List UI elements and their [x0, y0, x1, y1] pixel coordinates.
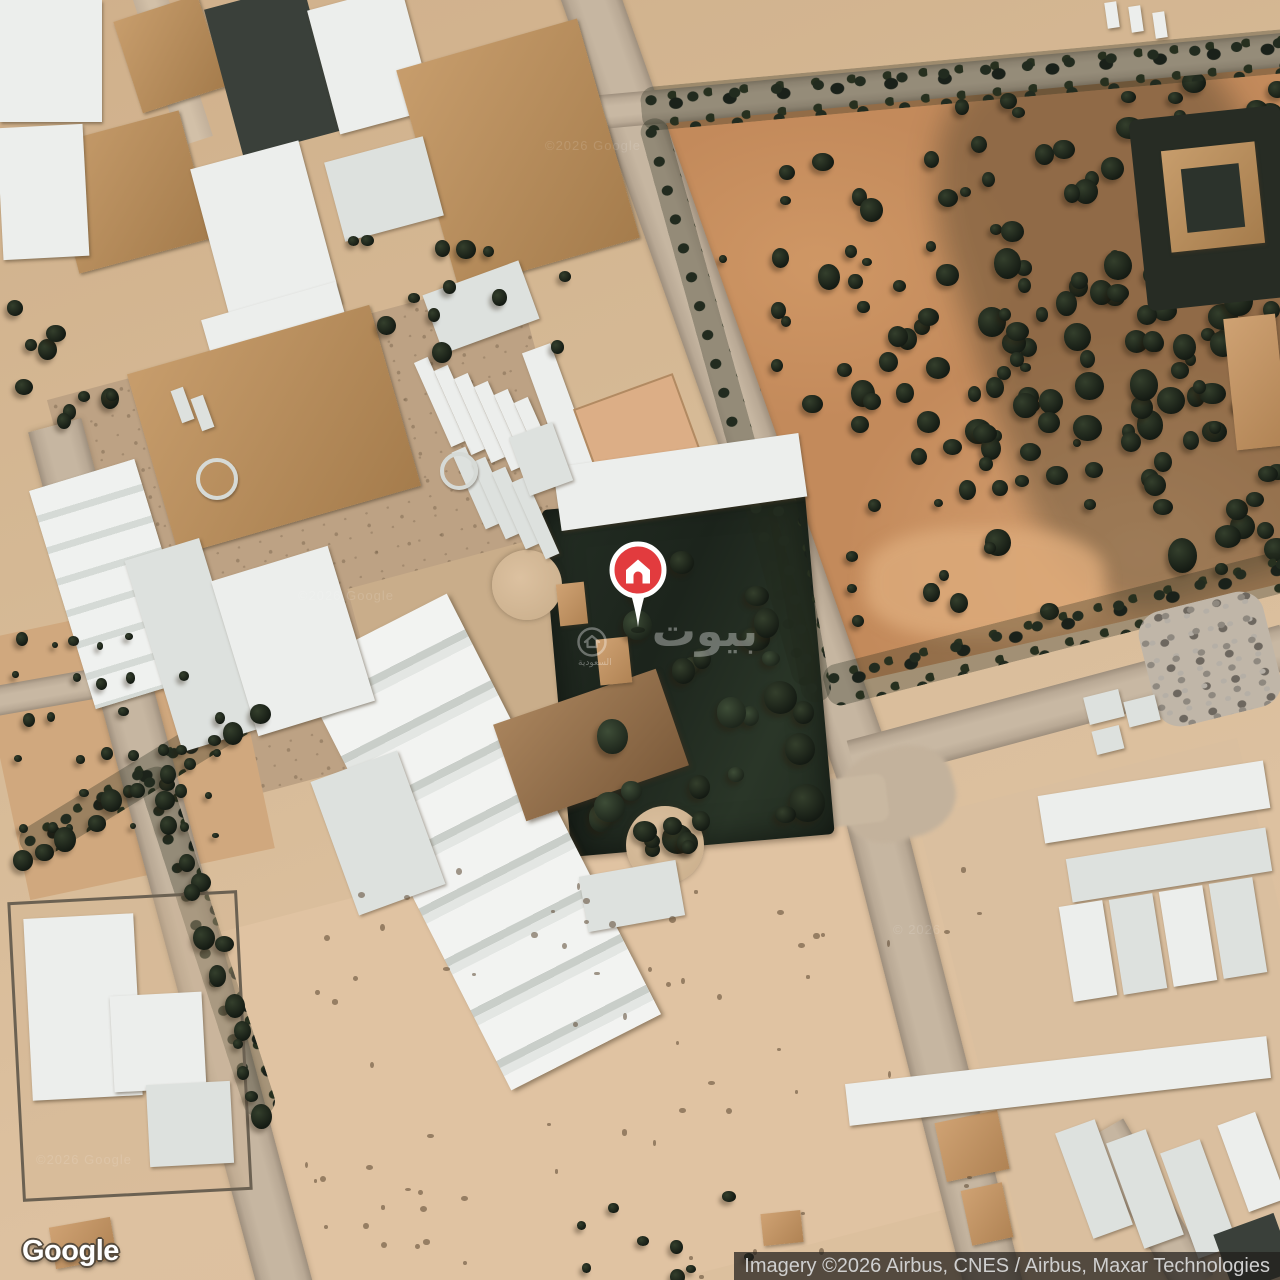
tree — [1268, 81, 1280, 99]
tree — [917, 411, 940, 433]
tree — [926, 357, 950, 378]
tree — [1013, 393, 1038, 418]
shed — [934, 1110, 1009, 1182]
tree — [175, 784, 186, 798]
shrub — [363, 1223, 368, 1229]
tree — [251, 1104, 272, 1129]
tree — [764, 681, 797, 714]
imagery-watermark: ©2026 Google — [545, 138, 641, 153]
tree — [435, 240, 450, 256]
tree — [1246, 492, 1264, 507]
tree — [1015, 475, 1029, 487]
imagery-attribution: Imagery ©2026 Airbus, CNES / Airbus, Max… — [734, 1252, 1280, 1280]
tree — [1104, 251, 1131, 280]
tree — [234, 1021, 251, 1041]
imagery-watermark: ©2026 Google — [36, 1152, 132, 1167]
tree — [936, 264, 959, 287]
tree — [893, 280, 906, 292]
shrub — [320, 1176, 326, 1182]
tree — [793, 701, 814, 724]
tree — [863, 393, 881, 410]
tree — [233, 1039, 244, 1049]
tree — [483, 246, 494, 257]
tree — [594, 792, 625, 822]
tree — [1084, 499, 1095, 509]
shrub — [332, 999, 338, 1004]
tree — [847, 584, 857, 593]
tree — [837, 363, 852, 377]
tree — [78, 391, 90, 402]
tree — [205, 792, 212, 799]
map-canvas[interactable]: ©2026 Google ©2026 Google ©2026 Google ©… — [0, 0, 1280, 1280]
tree — [950, 593, 968, 613]
tree — [408, 293, 420, 304]
shrub — [324, 935, 330, 941]
tree — [432, 342, 452, 363]
tree — [582, 1263, 590, 1272]
tree — [779, 165, 795, 180]
tree — [1018, 278, 1031, 293]
tree — [1193, 380, 1206, 394]
tree — [176, 745, 187, 756]
building — [1092, 725, 1125, 755]
shrub — [681, 978, 684, 984]
shrub — [622, 1129, 628, 1136]
tree — [215, 936, 235, 952]
tree — [717, 697, 746, 727]
tree — [101, 747, 112, 760]
tree — [492, 289, 507, 307]
tree — [577, 1221, 586, 1230]
tree — [1080, 350, 1095, 368]
tree — [1168, 538, 1198, 573]
tree — [868, 499, 881, 512]
shrub — [967, 1176, 972, 1179]
tree — [918, 308, 939, 326]
tree — [852, 615, 864, 627]
tree — [1168, 92, 1183, 104]
tree — [179, 854, 195, 872]
building — [0, 0, 102, 122]
building — [110, 992, 207, 1093]
tree — [1173, 334, 1196, 360]
tree — [728, 767, 744, 782]
imagery-watermark: ©2026 Google — [298, 588, 394, 603]
shrub — [694, 890, 698, 893]
tree — [79, 789, 88, 797]
tree — [25, 339, 37, 351]
tree — [97, 642, 103, 650]
tree — [38, 339, 57, 360]
tree — [13, 850, 33, 870]
tree — [1215, 525, 1242, 548]
tree — [1035, 144, 1054, 164]
storage-tank — [196, 458, 238, 500]
tree — [846, 551, 859, 562]
tree — [994, 248, 1021, 279]
tree — [986, 377, 1004, 397]
tree — [999, 308, 1011, 321]
tree — [968, 386, 981, 401]
building — [324, 136, 444, 242]
tree — [959, 480, 976, 500]
shrub — [353, 976, 358, 981]
tree — [1053, 140, 1074, 159]
tree — [209, 965, 227, 986]
google-logo[interactable]: Google — [22, 1235, 119, 1268]
shrub — [404, 895, 410, 900]
tree — [911, 448, 927, 465]
tree — [377, 316, 396, 335]
tree — [802, 395, 822, 413]
tree — [88, 815, 106, 831]
tree — [633, 821, 657, 842]
tree — [15, 379, 34, 395]
shrub — [531, 932, 538, 939]
tree — [979, 457, 992, 471]
tree — [250, 704, 271, 724]
tree — [348, 236, 359, 246]
tree — [621, 781, 642, 801]
tree — [179, 671, 189, 680]
shrub — [726, 1108, 732, 1114]
shrub — [699, 1275, 704, 1280]
tree — [559, 271, 571, 281]
tree — [879, 352, 898, 372]
tree — [184, 884, 200, 901]
tree — [1064, 323, 1091, 351]
shrub — [653, 1140, 657, 1146]
building — [1128, 5, 1144, 32]
tree — [155, 791, 175, 810]
shrub — [573, 1022, 577, 1027]
shrub — [443, 967, 450, 970]
tree — [130, 783, 145, 799]
building — [1104, 1, 1120, 28]
tree — [126, 672, 136, 683]
tree — [7, 300, 23, 315]
tree — [1036, 307, 1049, 321]
shrub — [381, 1242, 387, 1248]
tree — [785, 733, 815, 765]
tree — [1144, 474, 1166, 496]
tree — [1226, 499, 1248, 521]
tree — [1121, 91, 1136, 104]
shrub — [555, 1169, 559, 1173]
shrub — [370, 1062, 374, 1068]
tree — [456, 240, 476, 260]
shrub — [708, 1081, 715, 1085]
tree — [1073, 439, 1081, 447]
tree — [1010, 352, 1023, 366]
tree — [1073, 415, 1102, 441]
shrub — [415, 1244, 420, 1249]
tree — [860, 198, 883, 221]
tree — [926, 241, 937, 251]
tree — [851, 416, 868, 433]
shrub — [381, 1205, 385, 1209]
shrub — [806, 975, 810, 978]
tree — [857, 301, 869, 314]
tree — [719, 255, 728, 264]
building — [0, 124, 89, 260]
tree — [888, 326, 908, 347]
imagery-watermark: © 2026 — [893, 922, 941, 937]
tree — [101, 789, 122, 812]
tree — [1157, 387, 1185, 413]
tree — [812, 153, 834, 171]
shrub — [609, 921, 616, 928]
tree — [1130, 369, 1158, 400]
tree — [943, 439, 962, 455]
tree — [1257, 522, 1274, 539]
tree — [1039, 389, 1063, 414]
tree — [597, 719, 627, 754]
tree — [35, 844, 53, 861]
tree — [76, 755, 85, 763]
shrub — [423, 1239, 430, 1244]
shrub — [583, 898, 589, 904]
tree — [1046, 466, 1068, 485]
tree — [775, 806, 796, 823]
tree — [1154, 452, 1172, 473]
shed — [760, 1210, 803, 1246]
tree — [780, 196, 791, 205]
tree — [106, 390, 118, 400]
tree — [973, 424, 996, 443]
building — [1152, 11, 1168, 38]
tree — [23, 713, 35, 727]
tree — [1038, 412, 1059, 433]
tree — [670, 1269, 685, 1280]
tree — [12, 671, 18, 678]
shrub — [380, 924, 385, 931]
tree — [923, 583, 939, 603]
tree — [1171, 362, 1189, 378]
tree — [225, 994, 245, 1018]
tree — [68, 636, 79, 646]
shrub — [461, 1196, 468, 1201]
shrub — [405, 1188, 411, 1191]
property-pin[interactable] — [604, 540, 672, 636]
tree — [689, 775, 710, 798]
tree — [118, 707, 128, 716]
shrub — [669, 916, 676, 923]
tree — [57, 413, 71, 429]
tree — [1001, 221, 1024, 242]
tree — [924, 151, 939, 168]
tree — [862, 258, 872, 267]
tree — [1071, 272, 1088, 289]
shrub — [666, 982, 671, 987]
tree — [46, 325, 66, 342]
courtyard — [1181, 163, 1245, 233]
tree — [938, 189, 958, 207]
tree — [992, 480, 1008, 497]
tree — [54, 827, 75, 852]
pin-shadow — [631, 627, 645, 633]
tree — [73, 673, 81, 681]
tree — [213, 749, 221, 757]
tree — [971, 136, 987, 153]
bayut-watermark-region: السعودية — [578, 658, 612, 668]
turnaround-circle — [492, 550, 562, 620]
tree — [845, 245, 857, 258]
shrub — [623, 1013, 626, 1020]
tree — [848, 274, 863, 290]
shrub — [456, 868, 462, 875]
tree — [1143, 331, 1164, 352]
tree — [193, 926, 215, 950]
building — [146, 1081, 234, 1167]
tree — [896, 383, 913, 403]
tree — [939, 570, 949, 581]
tree — [551, 340, 565, 354]
tree — [16, 632, 28, 646]
tree — [818, 264, 840, 290]
tree — [47, 712, 55, 722]
tree — [608, 1203, 619, 1214]
shrub — [427, 1134, 434, 1139]
tree — [1121, 432, 1141, 452]
tree — [443, 280, 456, 293]
tree — [361, 235, 373, 246]
tree — [772, 248, 789, 267]
shrub — [964, 1184, 969, 1188]
tree — [682, 840, 695, 854]
tree — [428, 308, 440, 322]
tree — [934, 499, 944, 508]
tree — [215, 712, 225, 724]
storage-tank — [440, 452, 478, 490]
tree — [771, 302, 786, 319]
shrub — [961, 867, 967, 872]
tree — [771, 359, 784, 373]
shrub — [798, 943, 805, 948]
